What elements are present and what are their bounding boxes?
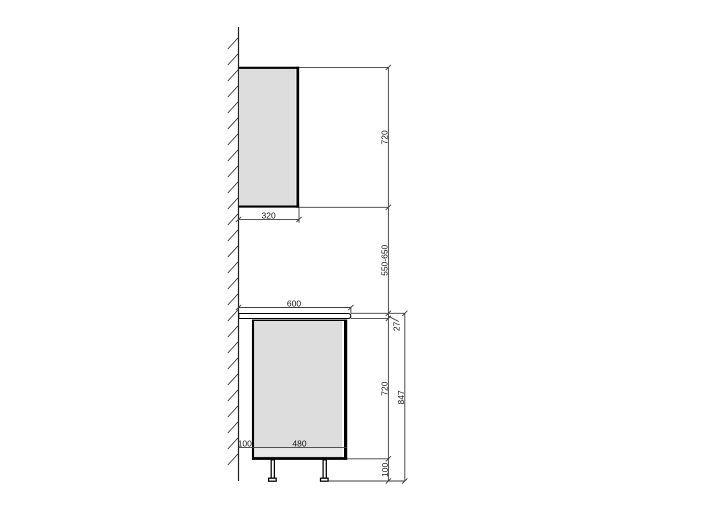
svg-text:100: 100 (380, 463, 390, 477)
svg-text:100: 100 (238, 439, 252, 449)
svg-text:480: 480 (292, 439, 306, 449)
svg-text:550-650: 550-650 (380, 244, 390, 275)
svg-text:720: 720 (380, 130, 390, 144)
svg-text:600: 600 (287, 299, 301, 309)
svg-text:847: 847 (396, 390, 406, 404)
svg-text:720: 720 (380, 381, 390, 395)
svg-text:320: 320 (262, 211, 276, 221)
svg-text:27: 27 (391, 321, 401, 331)
